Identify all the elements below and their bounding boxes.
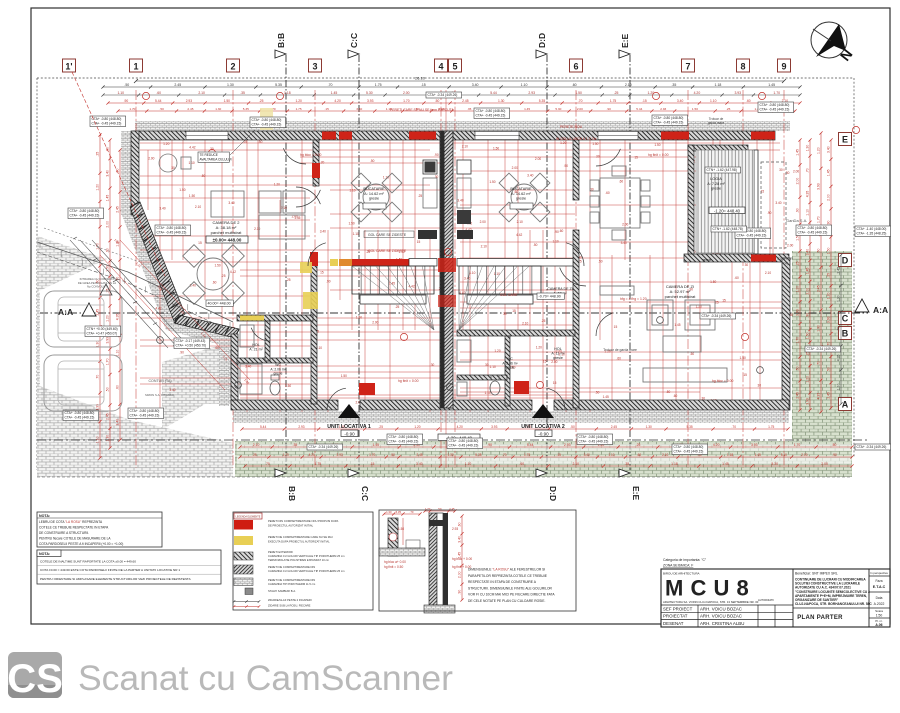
svg-text:1.50: 1.50 bbox=[341, 374, 347, 378]
svg-text:A: 14.62 m²: A: 14.62 m² bbox=[511, 192, 531, 196]
svg-text:1.10: 1.10 bbox=[117, 91, 124, 95]
svg-text:1.10: 1.10 bbox=[469, 271, 475, 275]
svg-text:CTA+ -0.80 (448.80): CTA+ -0.80 (448.80) bbox=[65, 411, 95, 415]
svg-text:5.44: 5.44 bbox=[527, 443, 534, 447]
svg-text:.25: .25 bbox=[286, 278, 291, 282]
svg-text:CTA+ -0.45 (449.15): CTA+ -0.45 (449.15) bbox=[130, 414, 160, 418]
svg-text:.50: .50 bbox=[124, 83, 129, 87]
svg-text:1.45: 1.45 bbox=[106, 195, 110, 202]
svg-text:2.10: 2.10 bbox=[253, 443, 260, 447]
svg-text:CTA+ -0.80 (448.80): CTA+ -0.80 (448.80) bbox=[449, 439, 479, 443]
svg-text:.50: .50 bbox=[817, 248, 821, 253]
svg-text:30: 30 bbox=[745, 263, 749, 267]
svg-text:E: E bbox=[842, 135, 848, 145]
svg-text:.60: .60 bbox=[572, 83, 577, 87]
svg-text:.50: .50 bbox=[370, 159, 375, 163]
svg-text:1.30: 1.30 bbox=[837, 295, 841, 302]
svg-text:A: A bbox=[842, 400, 849, 410]
svg-text:.70: .70 bbox=[578, 99, 583, 103]
svg-text:5: 5 bbox=[452, 62, 457, 72]
svg-text:EXECUTA DUPA PROIECTUL AUTORIZ: EXECUTA DUPA PROIECTUL AUTORIZAT INITIAL bbox=[268, 540, 330, 544]
svg-text:1.20: 1.20 bbox=[560, 141, 566, 145]
svg-text:.15: .15 bbox=[642, 99, 647, 103]
svg-text:3.93: 3.93 bbox=[367, 99, 374, 103]
svg-text:hg finit = 0.00: hg finit = 0.00 bbox=[648, 153, 669, 157]
svg-text:.60: .60 bbox=[734, 276, 739, 280]
svg-text:.25: .25 bbox=[418, 194, 423, 198]
svg-text:3.93: 3.93 bbox=[827, 316, 831, 323]
svg-text:CTA+ -0.45 (449.15): CTA+ -0.45 (449.15) bbox=[654, 121, 684, 125]
svg-text:1.20: 1.20 bbox=[295, 99, 302, 103]
svg-text:CTA+ -0.80 (448.80): CTA+ -0.80 (448.80) bbox=[130, 409, 160, 413]
svg-text:A:A: A:A bbox=[873, 305, 888, 315]
svg-text:1.50: 1.50 bbox=[575, 91, 582, 95]
svg-text:CTA+ -0.80 (448.80): CTA+ -0.80 (448.80) bbox=[157, 226, 187, 230]
svg-text:CTA+ -0.17 (449.43): CTA+ -0.17 (449.43) bbox=[176, 339, 206, 343]
svg-text:CTA+ -0.45 (449.15): CTA+ -0.45 (449.15) bbox=[92, 122, 122, 126]
svg-text:15: 15 bbox=[543, 360, 547, 364]
svg-text:2.10: 2.10 bbox=[662, 453, 668, 457]
svg-text:(TA): (TA) bbox=[782, 262, 789, 266]
svg-text:COTELE CE TREBUIE RESPECTATE I: COTELE CE TREBUIE RESPECTATE IN ETAPA bbox=[39, 526, 109, 530]
svg-text:.25: .25 bbox=[252, 453, 257, 457]
svg-text:CTA+ -0.34 (449.26): CTA+ -0.34 (449.26) bbox=[857, 445, 887, 449]
svg-text:1.30: 1.30 bbox=[106, 435, 110, 442]
svg-text:2.10: 2.10 bbox=[254, 227, 260, 231]
svg-text:NOTA:: NOTA: bbox=[39, 552, 50, 556]
svg-text:2.00: 2.00 bbox=[796, 178, 800, 185]
svg-text:CTA+ -1.35 (448.25): CTA+ -1.35 (448.25) bbox=[857, 232, 887, 236]
svg-text:PENTRU fiecare COTELE DE MASUR: PENTRU fiecare COTELE DE MASURARE DE LA bbox=[39, 537, 111, 541]
svg-text:W GOLUL USCH # 1 C Ge: W GOLUL USCH # 1 C Ge bbox=[556, 137, 597, 141]
svg-text:1.50: 1.50 bbox=[224, 99, 231, 103]
svg-text:gresie: gresie bbox=[506, 366, 515, 370]
svg-text:5.44: 5.44 bbox=[636, 107, 642, 111]
svg-text:Scara: Scara bbox=[875, 609, 883, 613]
svg-text:.90: .90 bbox=[832, 453, 837, 457]
svg-text:.25: .25 bbox=[796, 261, 800, 266]
svg-text:parchet multistrat: parchet multistrat bbox=[665, 294, 697, 299]
svg-text:CTA+ -0.45 (449.15): CTA+ -0.45 (449.15) bbox=[798, 231, 828, 235]
svg-text:TE REDUCE: TE REDUCE bbox=[200, 153, 218, 157]
svg-text:1.70: 1.70 bbox=[794, 443, 801, 447]
svg-text:.25: .25 bbox=[614, 91, 619, 95]
svg-text:3.40: 3.40 bbox=[806, 249, 810, 256]
svg-text:2.00: 2.00 bbox=[806, 288, 810, 295]
svg-text:2.10: 2.10 bbox=[765, 271, 771, 275]
svg-text:2.93: 2.93 bbox=[660, 107, 666, 111]
svg-text:2.45: 2.45 bbox=[174, 83, 181, 87]
svg-text:2.00: 2.00 bbox=[512, 166, 518, 170]
svg-text:.50: .50 bbox=[666, 390, 671, 394]
svg-text:garda mare: garda mare bbox=[708, 121, 725, 125]
svg-text:1.30: 1.30 bbox=[806, 145, 810, 152]
svg-text:4.35: 4.35 bbox=[806, 191, 810, 198]
svg-text:5.35: 5.35 bbox=[275, 83, 282, 87]
svg-text:2.10: 2.10 bbox=[462, 145, 468, 149]
svg-text:1.75: 1.75 bbox=[768, 425, 774, 429]
svg-text:NOTA:: NOTA: bbox=[39, 514, 50, 518]
svg-text:.50: .50 bbox=[435, 99, 440, 103]
svg-text:ARH. CRISTINA ALBU: ARH. CRISTINA ALBU bbox=[700, 621, 744, 626]
svg-text:LOGIA: LOGIA bbox=[710, 177, 722, 181]
svg-text:2.93: 2.93 bbox=[298, 425, 304, 429]
svg-text:.50: .50 bbox=[570, 425, 575, 429]
svg-text:.60: .60 bbox=[212, 280, 217, 284]
svg-text:3.93: 3.93 bbox=[751, 443, 758, 447]
svg-text:30: 30 bbox=[758, 384, 762, 388]
svg-text:2.45: 2.45 bbox=[187, 107, 193, 111]
svg-text:ZIDARIE/GLAF PESTE 2 INCAPERI: ZIDARIE/GLAF PESTE 2 INCAPERI bbox=[268, 598, 312, 602]
svg-text:3.93: 3.93 bbox=[106, 337, 110, 344]
svg-text:30: 30 bbox=[485, 363, 489, 367]
svg-text:5.35: 5.35 bbox=[539, 99, 546, 103]
svg-text:gresie: gresie bbox=[703, 258, 712, 262]
svg-text:hg finit = 0.00: hg finit = 0.00 bbox=[398, 379, 419, 383]
svg-text:1.45: 1.45 bbox=[674, 323, 680, 327]
svg-text:1.10: 1.10 bbox=[806, 209, 810, 216]
svg-text:A.06: A.06 bbox=[875, 623, 882, 627]
svg-text:COTELE DE INALTIME SUNT RAPORT: COTELE DE INALTIME SUNT RAPORTATE LA COT… bbox=[40, 560, 136, 564]
svg-text:1.10: 1.10 bbox=[349, 188, 355, 192]
svg-text:1.20: 1.20 bbox=[283, 453, 289, 457]
svg-text:1.50: 1.50 bbox=[214, 263, 220, 267]
svg-text:STRUCTURII. DIMENSIUNILE FINIT: STRUCTURII. DIMENSIUNILE FINITE ALE GOLU… bbox=[468, 586, 553, 590]
svg-text:PERETI DE COMPARTIMENTARE DIN: PERETI DE COMPARTIMENTARE DIN bbox=[268, 578, 315, 582]
svg-text:.15: .15 bbox=[370, 462, 375, 466]
svg-text:UNIT LOCATIVA 1: UNIT LOCATIVA 1 bbox=[327, 424, 371, 430]
svg-text:CTA+ -0.45 (449.15): CTA+ -0.45 (449.15) bbox=[157, 231, 187, 235]
svg-text:1.30: 1.30 bbox=[227, 83, 234, 87]
svg-text:.90: .90 bbox=[487, 443, 492, 447]
svg-text:15: 15 bbox=[634, 156, 638, 160]
svg-text:1.50: 1.50 bbox=[592, 142, 598, 146]
svg-text:.90: .90 bbox=[607, 107, 612, 111]
svg-text:4.42: 4.42 bbox=[189, 145, 195, 149]
svg-text:CTA+ -0.80 (448.80): CTA+ -0.80 (448.80) bbox=[389, 435, 419, 439]
svg-text:CTA+ -0.80 (448.80): CTA+ -0.80 (448.80) bbox=[92, 117, 122, 121]
svg-text:CAMERA DE ZI: CAMERA DE ZI bbox=[547, 287, 572, 291]
svg-text:.50: .50 bbox=[106, 387, 110, 392]
svg-text:1:50: 1:50 bbox=[876, 614, 883, 618]
svg-text:3.40: 3.40 bbox=[159, 207, 165, 211]
svg-text:.25: .25 bbox=[259, 99, 264, 103]
svg-text:CTA+ -0.80 (448.80): CTA+ -0.80 (448.80) bbox=[252, 118, 282, 122]
svg-text:1.10: 1.10 bbox=[521, 83, 528, 87]
svg-text:.35: .35 bbox=[240, 91, 245, 95]
svg-text:1.10: 1.10 bbox=[484, 391, 490, 395]
svg-text:CTA+ -0.80 (448.80): CTA+ -0.80 (448.80) bbox=[654, 116, 684, 120]
svg-text:.60: .60 bbox=[746, 99, 751, 103]
svg-text:30: 30 bbox=[210, 147, 214, 151]
svg-text:LEBRU DE COTA "LA ROSU" REPREZ: LEBRU DE COTA "LA ROSU" REPREZINTA bbox=[39, 520, 103, 524]
svg-text:.25: .25 bbox=[541, 319, 546, 323]
svg-text:3.93: 3.93 bbox=[806, 398, 810, 405]
svg-text:.90: .90 bbox=[827, 220, 831, 225]
svg-text:C:C: C:C bbox=[349, 33, 359, 48]
svg-text:3.40: 3.40 bbox=[472, 83, 479, 87]
svg-text:gresie: gresie bbox=[274, 372, 283, 376]
svg-text:.50: .50 bbox=[258, 140, 263, 144]
svg-text:BUCATARIE: BUCATARIE bbox=[510, 187, 532, 191]
svg-text:26.10: 26.10 bbox=[415, 76, 426, 81]
svg-text:15: 15 bbox=[198, 241, 202, 245]
svg-text:hg bloc = 0.00: hg bloc = 0.00 bbox=[712, 379, 734, 383]
svg-text:4.42: 4.42 bbox=[155, 307, 161, 311]
svg-text:1.50: 1.50 bbox=[179, 188, 185, 192]
svg-text:15: 15 bbox=[417, 240, 421, 244]
svg-text:.70: .70 bbox=[502, 453, 507, 457]
svg-text:GanDa S.A.: GanDa S.A. bbox=[786, 218, 807, 223]
svg-text:30: 30 bbox=[435, 175, 439, 179]
svg-text:.60: .60 bbox=[559, 229, 564, 233]
svg-text:1: 1 bbox=[133, 62, 138, 72]
svg-text:4: 4 bbox=[438, 62, 443, 72]
svg-text:4.20: 4.20 bbox=[309, 453, 315, 457]
svg-text:A: 21 m²: A: 21 m² bbox=[249, 348, 263, 352]
svg-text:.60: .60 bbox=[519, 462, 524, 466]
svg-text:3.40: 3.40 bbox=[116, 419, 120, 426]
svg-text:4.20: 4.20 bbox=[694, 91, 701, 95]
svg-text:.50: .50 bbox=[785, 171, 790, 175]
svg-text:1.10: 1.10 bbox=[353, 232, 359, 236]
svg-text:1.70: 1.70 bbox=[106, 358, 110, 365]
svg-text:2.45: 2.45 bbox=[817, 285, 821, 292]
svg-text:1.20: 1.20 bbox=[494, 349, 500, 353]
svg-text:1.10: 1.10 bbox=[188, 161, 194, 165]
svg-text:.50: .50 bbox=[598, 260, 603, 264]
svg-text:CTN+ +0.00 (449.60): CTN+ +0.00 (449.60) bbox=[87, 327, 118, 331]
svg-text:4.35: 4.35 bbox=[817, 393, 821, 400]
svg-text:.90: .90 bbox=[564, 164, 569, 168]
svg-text:1.20: 1.20 bbox=[827, 293, 831, 300]
svg-text:.60: .60 bbox=[156, 91, 161, 95]
svg-text:ARH. VOICU BOZAC: ARH. VOICU BOZAC bbox=[700, 614, 742, 619]
svg-text:gresie: gresie bbox=[711, 187, 721, 191]
svg-text:CTA+ -0.45 (449.15): CTA+ -0.45 (449.15) bbox=[579, 440, 609, 444]
svg-text:.60: .60 bbox=[116, 385, 120, 390]
svg-text:gresie: gresie bbox=[553, 356, 563, 360]
svg-text:.35: .35 bbox=[624, 462, 629, 466]
svg-text:1.50: 1.50 bbox=[827, 248, 831, 255]
svg-text:CS: CS bbox=[7, 657, 63, 701]
svg-text:E:E: E:E bbox=[631, 486, 641, 501]
svg-text:PROIECTAT: PROIECTAT bbox=[663, 614, 688, 619]
svg-text:E.T.A.C: E.T.A.C bbox=[873, 585, 886, 589]
svg-text:1.20: 1.20 bbox=[96, 184, 100, 191]
svg-text:3.40: 3.40 bbox=[775, 201, 781, 205]
svg-text:SEF PROIECT: SEF PROIECT bbox=[663, 606, 693, 611]
svg-text:2.00: 2.00 bbox=[106, 221, 110, 228]
svg-text:1.20: 1.20 bbox=[806, 376, 810, 383]
svg-text:1.10: 1.10 bbox=[490, 365, 496, 369]
svg-text:CTA+ -0.45 (449.15): CTA+ -0.45 (449.15) bbox=[476, 114, 506, 118]
svg-text:3.40: 3.40 bbox=[245, 364, 251, 368]
svg-text:2.10: 2.10 bbox=[198, 91, 205, 95]
svg-text:4.20: 4.20 bbox=[334, 99, 341, 103]
svg-text:.70: .70 bbox=[817, 361, 821, 366]
svg-text:1.45: 1.45 bbox=[806, 267, 810, 274]
svg-text:15: 15 bbox=[722, 299, 726, 303]
svg-text:.60: .60 bbox=[458, 522, 462, 527]
svg-text:.60: .60 bbox=[605, 191, 610, 195]
svg-text:hg bloc a+ 0.00: hg bloc a+ 0.00 bbox=[384, 560, 406, 564]
svg-text:.50: .50 bbox=[116, 169, 120, 174]
svg-text:.90: .90 bbox=[180, 351, 185, 355]
svg-text:1.75: 1.75 bbox=[296, 107, 302, 111]
svg-text:2.45: 2.45 bbox=[837, 267, 841, 274]
svg-text:CTA+ -0.80 (448.80): CTA+ -0.80 (448.80) bbox=[760, 103, 790, 107]
svg-text:ARHITECTURA SA. VOINN CLUJ-: ARHITECTURA SA. VOINN CLUJ-NAPOCA, STR. … bbox=[663, 600, 759, 604]
svg-text:LEGENDA ELEMENTE: LEGENDA ELEMENTE bbox=[236, 516, 261, 519]
svg-text:1.18: 1.18 bbox=[715, 83, 722, 87]
svg-text:1.18: 1.18 bbox=[284, 91, 291, 95]
svg-text:.25: .25 bbox=[243, 140, 248, 144]
svg-text:1.20: 1.20 bbox=[536, 346, 542, 350]
svg-text:3.40: 3.40 bbox=[584, 453, 590, 457]
svg-text:2.00: 2.00 bbox=[801, 453, 807, 457]
svg-text:1.50: 1.50 bbox=[356, 315, 362, 319]
svg-text:1.10: 1.10 bbox=[837, 384, 841, 391]
svg-text:A: 7.28 m²: A: 7.28 m² bbox=[707, 182, 725, 186]
svg-text:AVALTAREA CELULUI: AVALTAREA CELULUI bbox=[200, 157, 232, 161]
svg-text:-1.20= 448.40: -1.20= 448.40 bbox=[714, 208, 741, 213]
svg-text:30: 30 bbox=[596, 155, 600, 159]
svg-text:2.93: 2.93 bbox=[564, 443, 571, 447]
svg-text:CTA+ -0.34 (449.26): CTA+ -0.34 (449.26) bbox=[309, 445, 339, 449]
svg-text:30: 30 bbox=[431, 363, 435, 367]
svg-text:parchet multistrat: parchet multistrat bbox=[211, 230, 243, 235]
svg-text:1.10: 1.10 bbox=[552, 239, 558, 243]
svg-text:±0.00= 448.00: ±0.00= 448.00 bbox=[213, 238, 242, 243]
svg-text:.70: .70 bbox=[732, 425, 737, 429]
svg-text:CTA+ -0.45 (449.15): CTA+ -0.45 (449.15) bbox=[760, 108, 790, 112]
svg-text:.60: .60 bbox=[673, 394, 678, 398]
svg-text:2.10: 2.10 bbox=[281, 206, 287, 210]
svg-text:COTA ±0.00 = 449.60 ESTE COTA: COTA ±0.00 = 449.60 ESTE COTA PARDOSELII… bbox=[40, 568, 180, 572]
svg-text:.50: .50 bbox=[201, 174, 206, 178]
svg-text:1.70: 1.70 bbox=[773, 91, 780, 95]
svg-text:.70: .70 bbox=[806, 168, 810, 173]
svg-text:CTN+ -1.62 (448.78): CTN+ -1.62 (448.78) bbox=[713, 227, 743, 231]
svg-text:CARAMIDA CU GOLURI VERTICALE T: CARAMIDA CU GOLURI VERTICALE TIP POROTHE… bbox=[268, 554, 345, 558]
svg-text:B:B: B:B bbox=[276, 33, 286, 48]
svg-text:CTA+ -0.80 (448.80): CTA+ -0.80 (448.80) bbox=[476, 109, 506, 113]
svg-text:Faza: Faza bbox=[875, 579, 882, 583]
svg-text:C: C bbox=[842, 314, 849, 324]
svg-text:1.50: 1.50 bbox=[398, 527, 404, 531]
svg-text:1.50: 1.50 bbox=[348, 221, 354, 225]
svg-text:2.10: 2.10 bbox=[517, 220, 523, 224]
svg-text:CTA+ -0.45 (449.15): CTA+ -0.45 (449.15) bbox=[674, 450, 704, 454]
svg-text:.90: .90 bbox=[326, 279, 331, 283]
svg-text:.15: .15 bbox=[421, 83, 426, 87]
svg-text:2.00: 2.00 bbox=[480, 220, 486, 224]
svg-text:.50: .50 bbox=[160, 107, 165, 111]
svg-text:1.30: 1.30 bbox=[646, 425, 652, 429]
svg-text:1.30: 1.30 bbox=[817, 325, 821, 332]
svg-text:4.35: 4.35 bbox=[116, 314, 120, 321]
svg-text:PERETI EXTERIORI: PERETI EXTERIORI bbox=[268, 550, 293, 554]
svg-text:CTA+ -0.34 (449.26): CTA+ -0.34 (449.26) bbox=[807, 347, 837, 351]
svg-text:1.30: 1.30 bbox=[215, 107, 221, 111]
svg-text:1.10: 1.10 bbox=[710, 99, 717, 103]
svg-text:.35: .35 bbox=[293, 443, 298, 447]
svg-text:2.00: 2.00 bbox=[827, 194, 831, 201]
svg-text:-0.70= 448.90: -0.70= 448.90 bbox=[539, 294, 561, 298]
svg-text:VOR FI CU 10CM MAI MICI PE FIE: VOR FI CU 10CM MAI MICI PE FIECARE DIREC… bbox=[468, 593, 555, 597]
svg-text:CTA+ -0.34 (449.26): CTA+ -0.34 (449.26) bbox=[428, 93, 458, 97]
svg-text:3.40: 3.40 bbox=[356, 107, 362, 111]
svg-text:4.20: 4.20 bbox=[713, 443, 720, 447]
svg-text:A: 11 m²: A: 11 m² bbox=[551, 352, 565, 356]
svg-text:Trotuar de garda mare: Trotuar de garda mare bbox=[603, 348, 637, 352]
svg-text:4.42: 4.42 bbox=[516, 233, 522, 237]
svg-text:1.10: 1.10 bbox=[96, 436, 100, 443]
svg-text:Scanat cu CamScanner: Scanat cu CamScanner bbox=[78, 658, 453, 698]
svg-text:3.93: 3.93 bbox=[817, 183, 821, 190]
svg-text:3.40: 3.40 bbox=[457, 199, 463, 203]
svg-text:Beneficiar: SNT IMPEX S: Beneficiar: SNT IMPEX SRL bbox=[795, 572, 838, 576]
svg-text:.25: .25 bbox=[395, 305, 400, 309]
svg-text:CONTUR: CONTUR bbox=[777, 257, 793, 261]
svg-text:2.00: 2.00 bbox=[793, 170, 799, 174]
svg-text:1.45: 1.45 bbox=[524, 107, 530, 111]
svg-text:DIMENSIUNILE "LA ROSU" ALE FER: DIMENSIUNILE "LA ROSU" ALE FERESTRELOR S… bbox=[468, 568, 545, 572]
svg-text:.35: .35 bbox=[671, 83, 676, 87]
svg-text:5.35: 5.35 bbox=[243, 107, 249, 111]
svg-text:5.30: 5.30 bbox=[366, 91, 373, 95]
svg-text:1.75: 1.75 bbox=[315, 462, 322, 466]
svg-text:GOL CARE SE ZIDESTE: GOL CARE SE ZIDESTE bbox=[368, 233, 407, 237]
svg-text:PLAN PARTER: PLAN PARTER bbox=[797, 615, 843, 621]
svg-text:hg bloc = 0.00: hg bloc = 0.00 bbox=[300, 153, 322, 157]
svg-text:ZIDARIE SUB LA ROSU, FIECARE: ZIDARIE SUB LA ROSU, FIECARE bbox=[268, 604, 311, 608]
svg-text:2: 2 bbox=[230, 62, 235, 72]
svg-text:A.2022: A.2022 bbox=[874, 602, 885, 606]
svg-text:4.42: 4.42 bbox=[230, 270, 236, 274]
svg-text:1.45: 1.45 bbox=[458, 552, 462, 559]
svg-text:DE PROIECTUL AUTORIZAT INITIAL: DE PROIECTUL AUTORIZAT INITIAL bbox=[268, 524, 314, 528]
svg-text:2.00: 2.00 bbox=[535, 157, 541, 161]
svg-text:.90: .90 bbox=[458, 590, 462, 595]
svg-text:3: 3 bbox=[312, 62, 317, 72]
svg-text:.90: .90 bbox=[767, 211, 772, 215]
svg-text:3.40: 3.40 bbox=[106, 170, 110, 177]
svg-text:5.35: 5.35 bbox=[475, 453, 481, 457]
svg-text:1.70: 1.70 bbox=[817, 216, 821, 223]
svg-text:CLUJ-NAPOCA, STR. BORHANCEANUL: CLUJ-NAPOCA, STR. BORHANCEANULUI NR. 58C bbox=[795, 602, 872, 606]
svg-text:1.45: 1.45 bbox=[768, 83, 775, 87]
svg-text:9: 9 bbox=[781, 62, 786, 72]
svg-text:D:D: D:D bbox=[548, 486, 558, 501]
svg-text:CTA+ -0.45 (449.15): CTA+ -0.45 (449.15) bbox=[737, 234, 767, 238]
svg-text:3.40: 3.40 bbox=[527, 174, 533, 178]
svg-text:6: 6 bbox=[573, 62, 578, 72]
svg-text:1.45: 1.45 bbox=[796, 149, 800, 156]
svg-text:COTA PARDOSELII PESTE A fi INC: COTA PARDOSELII PESTE A fi INCAPERII (+0… bbox=[39, 542, 123, 546]
svg-text:5.30: 5.30 bbox=[555, 107, 561, 111]
svg-text:2.10: 2.10 bbox=[195, 205, 201, 209]
svg-text:.50: .50 bbox=[832, 443, 837, 447]
svg-text:.70: .70 bbox=[328, 83, 333, 87]
svg-text:.60: .60 bbox=[619, 179, 624, 183]
svg-text:2.00: 2.00 bbox=[551, 360, 557, 364]
svg-text:B: B bbox=[842, 329, 849, 339]
svg-text:2.00: 2.00 bbox=[577, 107, 583, 111]
svg-text:3.40: 3.40 bbox=[827, 146, 831, 153]
svg-text:3.40: 3.40 bbox=[228, 201, 234, 205]
